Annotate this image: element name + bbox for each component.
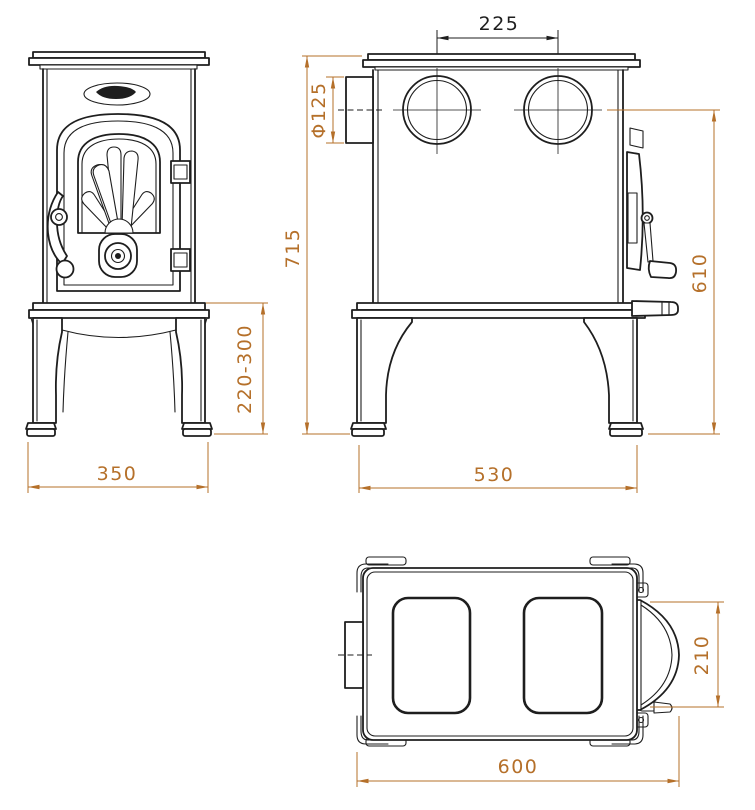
- air-control-knob: [99, 234, 137, 277]
- dim-label-side-depth: 530: [474, 464, 515, 486]
- brand-badge: [84, 83, 150, 105]
- dim-front-leg-height: 220-300: [206, 303, 268, 434]
- dim-flue-spacing: 225: [437, 13, 558, 54]
- dim-label-flue-spacing: 225: [479, 13, 520, 35]
- side-view: [338, 54, 678, 436]
- side-base-plate: [352, 301, 678, 318]
- top-view: [338, 557, 679, 746]
- flue-openings: [393, 68, 602, 154]
- dim-label-flue-diameter: Φ125: [308, 81, 330, 138]
- dim-label-front-width: 350: [97, 463, 138, 485]
- stove-legs: [26, 318, 212, 436]
- dim-label-top-overall-depth: 600: [498, 756, 539, 778]
- side-legs: [351, 318, 643, 436]
- door-hinge-top: [171, 161, 190, 183]
- dim-label-leg-height: 220-300: [234, 324, 256, 414]
- side-door-profile: [627, 128, 676, 278]
- dim-label-overall-height: 715: [282, 228, 304, 269]
- flue-collar-side: [338, 77, 382, 143]
- stove-dimension-drawing: 220-300 350 225 Φ125 715 610: [0, 0, 755, 810]
- door-hinge-bottom: [171, 249, 190, 271]
- side-top-molding: [363, 54, 640, 70]
- stove-top-molding: [29, 52, 209, 69]
- dim-label-door-width: 210: [691, 635, 713, 676]
- stove-door: [48, 114, 190, 291]
- dim-label-flue-center-height: 610: [689, 253, 711, 294]
- dim-front-width: 350: [28, 442, 208, 493]
- front-view: [26, 52, 212, 436]
- dim-side-depth: 530: [359, 445, 637, 493]
- top-door: [634, 583, 679, 727]
- top-body: [363, 568, 637, 740]
- drawing-canvas: 220-300 350 225 Φ125 715 610: [0, 0, 755, 810]
